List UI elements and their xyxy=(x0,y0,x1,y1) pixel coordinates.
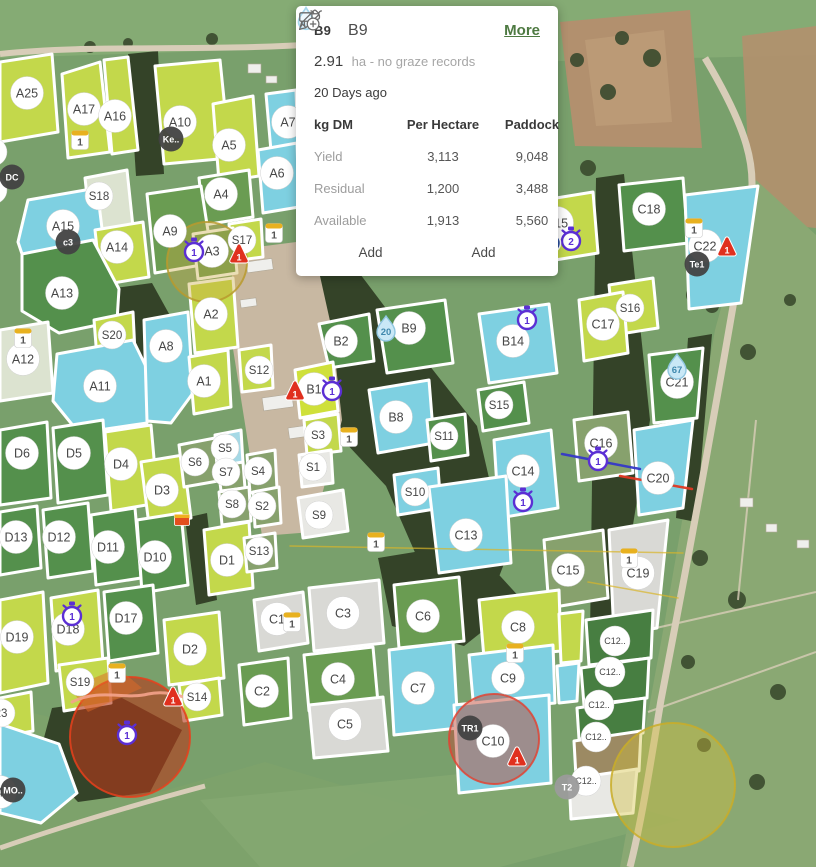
paddock-label-C18[interactable]: C18 xyxy=(633,193,666,226)
paddock-label-C12..[interactable]: C12.. xyxy=(584,690,614,720)
svg-text:C6: C6 xyxy=(415,610,431,624)
paddock-label-C4[interactable]: C4 xyxy=(322,663,355,696)
svg-text:1: 1 xyxy=(329,387,335,398)
svg-text:D13: D13 xyxy=(5,531,28,545)
paddock-label-S8[interactable]: S8 xyxy=(218,490,246,518)
svg-text:23: 23 xyxy=(0,708,7,720)
paddock-label-B8[interactable]: B8 xyxy=(380,401,413,434)
svg-text:C12..: C12.. xyxy=(585,732,607,742)
svg-text:S16: S16 xyxy=(620,303,640,315)
add-graze-label: Add xyxy=(358,245,382,260)
svg-text:1: 1 xyxy=(289,619,295,631)
paddock-label-A5[interactable]: A5 xyxy=(213,129,246,162)
svg-text:MO..: MO.. xyxy=(3,786,23,796)
paddock-label-D5[interactable]: D5 xyxy=(58,437,91,470)
paddock-label-C14[interactable]: C14 xyxy=(507,455,540,488)
count-tag-badge[interactable]: 1 xyxy=(686,219,703,238)
svg-text:B14: B14 xyxy=(502,335,524,349)
svg-text:D12: D12 xyxy=(48,531,71,545)
paddock-label-S12[interactable]: S12 xyxy=(245,356,273,384)
paddock-label-C2[interactable]: C2 xyxy=(246,675,279,708)
label-tag-badge[interactable]: c3 xyxy=(56,230,81,255)
paddock-label-C7[interactable]: C7 xyxy=(402,672,435,705)
area-value: 2.91 xyxy=(314,53,343,70)
svg-text:C12..: C12.. xyxy=(599,667,621,677)
svg-text:B8: B8 xyxy=(388,411,403,425)
paddock-area[interactable] xyxy=(559,611,583,663)
paddock-label-S16[interactable]: S16 xyxy=(616,294,644,322)
paddock-label-A6[interactable]: A6 xyxy=(261,157,294,190)
count-tag-badge[interactable]: 1 xyxy=(15,329,32,348)
paddock-label-C13[interactable]: C13 xyxy=(450,519,483,552)
count-tag-badge[interactable]: 1 xyxy=(507,644,524,663)
row-per-hectare: 3,113 xyxy=(394,149,492,164)
svg-text:A12: A12 xyxy=(12,353,34,367)
paddock-label-A17[interactable]: A17 xyxy=(68,93,101,126)
count-tag-badge[interactable]: 1 xyxy=(109,664,126,683)
count-tag-badge[interactable]: 1 xyxy=(266,224,283,243)
svg-text:S15: S15 xyxy=(489,400,509,412)
row-label: Residual xyxy=(314,181,394,196)
area-line: 2.91 ha - no graze records xyxy=(314,53,540,71)
svg-text:D17: D17 xyxy=(115,612,138,626)
pencil-plus-icon xyxy=(296,6,323,33)
svg-text:Ke..: Ke.. xyxy=(163,135,180,145)
paddock-label-D11[interactable]: D11 xyxy=(92,531,125,564)
add-record-button[interactable]: Add xyxy=(427,245,540,260)
row-per-hectare: 1,913 xyxy=(394,213,492,228)
svg-text:1: 1 xyxy=(191,248,197,259)
label-tag-badge[interactable]: TR1 xyxy=(458,716,483,741)
label-tag-badge[interactable]: DC xyxy=(0,165,25,190)
more-link[interactable]: More xyxy=(504,22,540,39)
paddock-label-A14[interactable]: A14 xyxy=(101,231,134,264)
svg-text:A1: A1 xyxy=(196,375,211,389)
svg-text:1: 1 xyxy=(170,696,175,706)
svg-text:A16: A16 xyxy=(104,110,126,124)
svg-text:A7: A7 xyxy=(280,116,295,130)
row-per-hectare: 1,200 xyxy=(394,181,492,196)
svg-text:S20: S20 xyxy=(102,330,122,342)
svg-text:1: 1 xyxy=(524,316,530,327)
svg-text:DC: DC xyxy=(6,173,19,183)
paddock-label-S4[interactable]: S4 xyxy=(244,457,272,485)
paddock-label-C3[interactable]: C3 xyxy=(327,597,360,630)
row-paddock: 9,048 xyxy=(492,149,572,164)
count-tag-badge[interactable]: 1 xyxy=(341,428,358,447)
paddock-label-C12..[interactable]: C12.. xyxy=(595,657,625,687)
svg-text:A9: A9 xyxy=(162,225,177,239)
svg-text:S5: S5 xyxy=(218,443,232,455)
svg-text:A14: A14 xyxy=(106,241,128,255)
svg-text:1: 1 xyxy=(77,137,83,149)
svg-text:D10: D10 xyxy=(144,551,167,565)
svg-text:C1: C1 xyxy=(269,613,285,627)
svg-text:A11: A11 xyxy=(89,380,110,394)
paddock-label-A8[interactable]: A8 xyxy=(150,330,183,363)
highlight-circle[interactable] xyxy=(611,723,735,847)
water-days-label: 20 Days ago xyxy=(314,85,387,100)
svg-text:A17: A17 xyxy=(73,103,95,117)
svg-text:C13: C13 xyxy=(455,529,478,543)
paddock-label-C15[interactable]: C15 xyxy=(552,554,585,587)
svg-text:TR1: TR1 xyxy=(461,724,478,734)
dm-table-header: kg DM Per Hectare Paddock xyxy=(314,117,540,132)
svg-text:1: 1 xyxy=(512,650,518,662)
svg-text:A8: A8 xyxy=(158,340,173,354)
paddock-label-S7[interactable]: S7 xyxy=(212,458,240,486)
col-per-hectare: Per Hectare xyxy=(394,117,492,132)
paddock-label-S2[interactable]: S2 xyxy=(248,492,276,520)
svg-text:D1: D1 xyxy=(219,554,235,568)
paddock-label-C12..[interactable]: C12.. xyxy=(581,722,611,752)
svg-text:Te1: Te1 xyxy=(690,260,705,270)
paddock-label-A9[interactable]: A9 xyxy=(154,215,187,248)
svg-text:C22: C22 xyxy=(694,240,717,254)
svg-text:C17: C17 xyxy=(592,318,615,332)
svg-text:1: 1 xyxy=(69,612,75,623)
svg-text:C5: C5 xyxy=(337,718,353,732)
svg-text:1: 1 xyxy=(514,756,519,766)
svg-text:B9: B9 xyxy=(401,322,416,336)
paddock-label-B9[interactable]: B9 xyxy=(393,312,426,345)
svg-text:S4: S4 xyxy=(251,466,266,478)
svg-text:C18: C18 xyxy=(638,203,661,217)
svg-text:S17: S17 xyxy=(232,235,252,247)
svg-text:S7: S7 xyxy=(219,467,233,479)
row-label: Available xyxy=(314,213,394,228)
svg-text:A6: A6 xyxy=(269,167,284,181)
paddock-label-D1[interactable]: D1 xyxy=(211,544,244,577)
table-row: Residual 1,200 3,488 xyxy=(314,181,540,196)
svg-text:1: 1 xyxy=(292,390,297,400)
area-suffix: ha - no graze records xyxy=(352,54,476,69)
svg-text:C3: C3 xyxy=(335,607,351,621)
svg-text:C9: C9 xyxy=(500,672,516,686)
svg-text:C10: C10 xyxy=(482,735,505,749)
paddock-label-C6[interactable]: C6 xyxy=(407,600,440,633)
paddock-label-S14[interactable]: S14 xyxy=(183,683,211,711)
svg-text:1: 1 xyxy=(626,555,632,567)
svg-text:S2: S2 xyxy=(255,501,269,513)
paddock-label-S11[interactable]: S11 xyxy=(430,422,458,450)
paddock-label-D2[interactable]: D2 xyxy=(174,633,207,666)
paddock-label-C8[interactable]: C8 xyxy=(502,611,535,644)
svg-text:20: 20 xyxy=(381,327,392,338)
svg-text:D4: D4 xyxy=(113,458,129,472)
paddock-label-D13[interactable]: D13 xyxy=(0,521,33,554)
svg-text:C15: C15 xyxy=(557,564,580,578)
paddock-label-S1[interactable]: S1 xyxy=(299,453,327,481)
count-tag-badge[interactable]: 1 xyxy=(284,613,301,632)
paddock-label-C9[interactable]: C9 xyxy=(492,662,525,695)
paddock-label-S18[interactable]: S18 xyxy=(85,182,113,210)
svg-text:S3: S3 xyxy=(311,430,325,442)
svg-text:1: 1 xyxy=(724,246,729,256)
row-paddock: 3,488 xyxy=(492,181,572,196)
paddock-label-A16[interactable]: A16 xyxy=(99,100,132,133)
svg-text:A25: A25 xyxy=(16,87,38,101)
count-tag-badge[interactable]: 1 xyxy=(368,533,385,552)
paddock-label-D17[interactable]: D17 xyxy=(110,602,143,635)
svg-text:A4: A4 xyxy=(213,188,228,202)
table-row: Available 1,913 5,560 xyxy=(314,213,540,228)
svg-text:C20: C20 xyxy=(647,472,670,486)
svg-text:67: 67 xyxy=(672,365,683,376)
paddock-label-A1[interactable]: A1 xyxy=(188,365,221,398)
paddock-label-A25[interactable]: A25 xyxy=(11,77,44,110)
paddock-label-A11[interactable]: A11 xyxy=(84,370,117,403)
paddock-label-D4[interactable]: D4 xyxy=(105,448,138,481)
svg-text:D2: D2 xyxy=(182,643,198,657)
paddock-label-S15[interactable]: S15 xyxy=(485,391,513,419)
paddock-label-C5[interactable]: C5 xyxy=(329,708,362,741)
svg-text:D3: D3 xyxy=(154,484,170,498)
paddock-popup: B9 B9 More 2.91 ha - no graze records 20… xyxy=(296,6,558,276)
paddock-label-D19[interactable]: D19 xyxy=(1,621,34,654)
marker-badge[interactable] xyxy=(175,515,190,526)
count-tag-badge[interactable]: 1 xyxy=(72,131,89,150)
svg-text:C19: C19 xyxy=(627,567,650,581)
paddock-label-D3[interactable]: D3 xyxy=(146,474,179,507)
paddock-label-C12..[interactable]: C12.. xyxy=(600,626,630,656)
svg-text:D19: D19 xyxy=(6,631,29,645)
dm-table: kg DM Per Hectare Paddock Yield 3,113 9,… xyxy=(314,117,540,228)
row-paddock: 5,560 xyxy=(492,213,572,228)
svg-text:S11: S11 xyxy=(434,431,454,443)
paddock-label-D6[interactable]: D6 xyxy=(6,437,39,470)
svg-text:1: 1 xyxy=(346,434,352,446)
popup-header: B9 B9 More xyxy=(314,22,540,40)
paddock-label-S6[interactable]: S6 xyxy=(181,448,209,476)
svg-text:1: 1 xyxy=(114,670,120,682)
paddock-label-C17[interactable]: C17 xyxy=(587,308,620,341)
col-paddock: Paddock xyxy=(492,117,572,132)
svg-text:C8: C8 xyxy=(510,621,526,635)
label-tag-badge[interactable]: MO.. xyxy=(1,778,26,803)
col-kg-dm: kg DM xyxy=(314,117,394,132)
svg-text:C2: C2 xyxy=(254,685,270,699)
svg-text:C4: C4 xyxy=(330,673,346,687)
svg-text:S14: S14 xyxy=(187,692,208,704)
svg-text:S8: S8 xyxy=(225,499,239,511)
svg-text:A5: A5 xyxy=(221,139,236,153)
popup-actions: Add Add xyxy=(314,245,540,260)
paddock-label-S9[interactable]: S9 xyxy=(305,501,333,529)
paddock-label-D10[interactable]: D10 xyxy=(139,541,172,574)
svg-text:S9: S9 xyxy=(312,510,326,522)
add-record-label: Add xyxy=(471,245,495,260)
paddock-label-C20[interactable]: C20 xyxy=(642,462,675,495)
paddock-label-A4[interactable]: A4 xyxy=(205,178,238,211)
svg-text:S6: S6 xyxy=(188,457,202,469)
add-graze-button[interactable]: Add xyxy=(314,245,427,260)
svg-text:D5: D5 xyxy=(66,447,82,461)
popup-title: B9 xyxy=(348,22,368,40)
svg-text:1: 1 xyxy=(691,225,697,237)
paddock-label-B2[interactable]: B2 xyxy=(325,325,358,358)
svg-text:S19: S19 xyxy=(70,677,90,689)
paddock-label-D12[interactable]: D12 xyxy=(43,521,76,554)
paddock-label-S10[interactable]: S10 xyxy=(401,478,429,506)
svg-text:S10: S10 xyxy=(405,487,425,499)
paddock-label-S20[interactable]: S20 xyxy=(98,321,126,349)
svg-text:D11: D11 xyxy=(97,541,119,555)
svg-text:c3: c3 xyxy=(63,238,73,248)
svg-text:S13: S13 xyxy=(249,546,269,558)
svg-text:1: 1 xyxy=(520,498,526,509)
svg-text:1: 1 xyxy=(595,457,601,468)
svg-text:D6: D6 xyxy=(14,447,30,461)
svg-text:C14: C14 xyxy=(512,465,535,479)
svg-text:A13: A13 xyxy=(51,287,73,301)
count-tag-badge[interactable]: 1 xyxy=(621,549,638,568)
paddock-label-S3[interactable]: S3 xyxy=(304,421,332,449)
paddock-area[interactable] xyxy=(557,663,579,703)
svg-text:C16: C16 xyxy=(590,437,613,451)
paddock-label-S19[interactable]: S19 xyxy=(66,668,94,696)
label-tag-badge[interactable]: Te1 xyxy=(685,252,710,277)
svg-text:S1: S1 xyxy=(306,462,320,474)
svg-text:B1: B1 xyxy=(306,383,321,397)
svg-text:C12..: C12.. xyxy=(588,700,610,710)
svg-text:C7: C7 xyxy=(410,682,426,696)
label-tag-badge[interactable]: T2 xyxy=(555,775,580,800)
svg-text:1: 1 xyxy=(236,253,241,263)
svg-text:C12..: C12.. xyxy=(604,636,626,646)
svg-text:S18: S18 xyxy=(89,191,109,203)
svg-text:A3: A3 xyxy=(204,245,219,259)
row-label: Yield xyxy=(314,149,394,164)
paddock-label-S13[interactable]: S13 xyxy=(245,537,273,565)
svg-text:T2: T2 xyxy=(562,783,573,793)
farm-map-screen: A25A17A16A10A5A7A6A4A9S18A15A14A13S17A3A… xyxy=(0,0,816,867)
label-tag-badge[interactable]: Ke.. xyxy=(159,127,184,152)
svg-text:1: 1 xyxy=(271,230,277,242)
svg-text:2: 2 xyxy=(568,237,574,248)
svg-text:1: 1 xyxy=(124,731,130,742)
water-status-row: 20 Days ago xyxy=(314,85,540,100)
paddock-label-A2[interactable]: A2 xyxy=(195,298,228,331)
paddock-label-A13[interactable]: A13 xyxy=(46,277,79,310)
svg-text:A2: A2 xyxy=(203,308,218,322)
svg-text:S12: S12 xyxy=(249,365,269,377)
svg-text:B2: B2 xyxy=(333,335,348,349)
table-row: Yield 3,113 9,048 xyxy=(314,149,540,164)
svg-text:1: 1 xyxy=(373,539,379,551)
svg-text:1: 1 xyxy=(20,335,26,347)
